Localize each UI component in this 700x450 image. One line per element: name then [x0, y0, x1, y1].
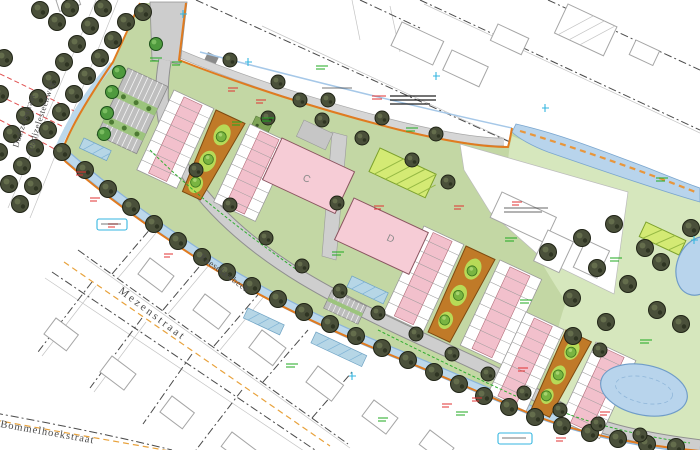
site-plan-page: Mezenstraat Roeselarebeek Bommelhoekstra… — [0, 0, 700, 450]
site-plan-map: Mezenstraat Roeselarebeek Bommelhoekstra… — [0, 0, 700, 450]
